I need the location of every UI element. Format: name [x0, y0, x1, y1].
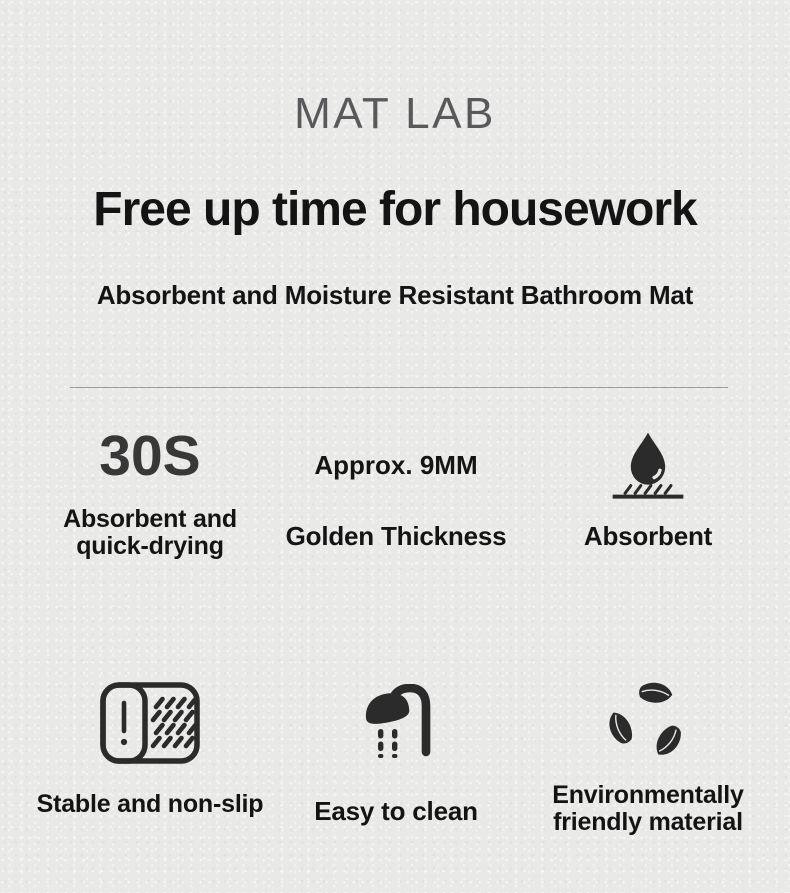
subheadline: Absorbent and Moisture Resistant Bathroo… [0, 282, 790, 308]
bath-mat-icon [100, 682, 200, 764]
feature-label: Stable and non-slip [15, 791, 285, 818]
stat-30s: 30S [15, 428, 285, 485]
brand-title: MAT LAB [0, 92, 790, 136]
divider [70, 387, 728, 388]
stat-9mm: Approx. 9MM [278, 452, 514, 478]
headline: Free up time for housework [0, 186, 790, 234]
feature-non-slip: Stable and non-slip [15, 682, 285, 818]
recycle-leaves-icon [609, 680, 687, 758]
feature-label: Golden Thickness [278, 523, 514, 551]
feature-easy-clean: Easy to clean [278, 684, 514, 826]
feature-absorbent: Absorbent [515, 428, 781, 551]
feature-label: Absorbent [515, 523, 781, 551]
feature-label: Environmentally friendly material [515, 782, 781, 836]
feature-label: Absorbent and quick-drying [15, 506, 285, 560]
feature-quick-drying: 30S Absorbent and quick-drying [15, 428, 285, 560]
feature-eco: Environmentally friendly material [515, 680, 781, 836]
feature-label: Easy to clean [278, 798, 514, 826]
product-infographic: MAT LAB Free up time for housework Absor… [0, 0, 790, 893]
water-drop-icon [605, 428, 691, 506]
feature-thickness: Approx. 9MM Golden Thickness [278, 452, 514, 551]
shower-head-icon [358, 684, 434, 758]
